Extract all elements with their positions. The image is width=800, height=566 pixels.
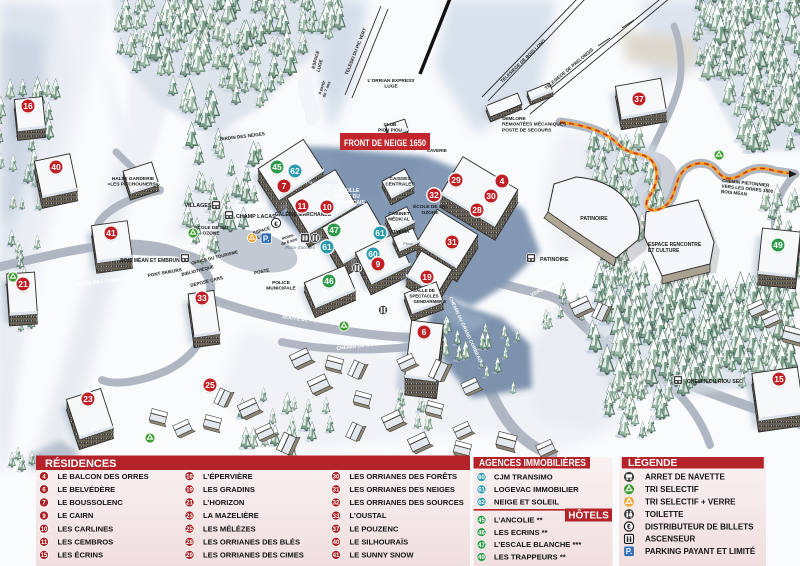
svg-text:Place: Place bbox=[403, 242, 413, 246]
svg-text:MUNICIPALE: MUNICIPALE bbox=[266, 286, 296, 292]
svg-text:L’HORIZON: L’HORIZON bbox=[203, 498, 244, 507]
svg-text:61: 61 bbox=[322, 242, 332, 252]
svg-text:L’ANCOLIE **: L’ANCOLIE ** bbox=[494, 515, 543, 524]
svg-text:L'ORRIAN EXPRESS: L'ORRIAN EXPRESS bbox=[368, 78, 416, 84]
svg-text:ASCENSEUR: ASCENSEUR bbox=[645, 535, 695, 544]
svg-text:NEIGE ET SOLEIL: NEIGE ET SOLEIL bbox=[494, 497, 559, 506]
svg-text:TRI SELECTIF + VERRE: TRI SELECTIF + VERRE bbox=[645, 498, 736, 507]
svg-text:CHAMP LACAS: CHAMP LACAS bbox=[236, 214, 276, 220]
svg-text:CABINET: CABINET bbox=[388, 211, 409, 217]
svg-text:41: 41 bbox=[333, 553, 340, 559]
svg-text:LOGEVAC IMMOBILIER: LOGEVAC IMMOBILIER bbox=[494, 485, 579, 494]
svg-text:23: 23 bbox=[186, 514, 193, 520]
svg-text:€: € bbox=[274, 221, 278, 228]
svg-text:PATINOIRE: PATINOIRE bbox=[540, 257, 569, 263]
svg-text:L’ESCALE BLANCHE ***: L’ESCALE BLANCHE *** bbox=[494, 540, 581, 549]
svg-text:LES CARLINES: LES CARLINES bbox=[58, 524, 114, 533]
svg-text:HÔTELS: HÔTELS bbox=[568, 509, 609, 522]
svg-text:31: 31 bbox=[333, 488, 340, 494]
svg-text:LUGE: LUGE bbox=[384, 84, 398, 90]
svg-text:33: 33 bbox=[333, 514, 340, 520]
svg-text:37: 37 bbox=[333, 527, 340, 533]
svg-text:ARRET DE NAVETTE: ARRET DE NAVETTE bbox=[645, 473, 726, 482]
svg-text:61: 61 bbox=[375, 228, 385, 238]
svg-text:47: 47 bbox=[478, 543, 485, 549]
svg-text:60: 60 bbox=[478, 475, 485, 481]
svg-text:45: 45 bbox=[272, 162, 282, 172]
svg-text:CENTRALES: CENTRALES bbox=[385, 182, 415, 188]
svg-text:PARKING PAYANT ET LIMITÉ: PARKING PAYANT ET LIMITÉ bbox=[645, 547, 756, 556]
svg-text:FRONT DE NEIGE 1650: FRONT DE NEIGE 1650 bbox=[344, 138, 426, 149]
svg-text:11: 11 bbox=[41, 540, 48, 546]
svg-text:LE CAIRN: LE CAIRN bbox=[58, 511, 94, 520]
svg-text:LES ORRIANES DES BLÉS: LES ORRIANES DES BLÉS bbox=[203, 537, 300, 546]
svg-text:49: 49 bbox=[773, 240, 783, 250]
svg-text:CAISSES: CAISSES bbox=[389, 176, 411, 182]
svg-text:LE BOUSSOLENC: LE BOUSSOLENC bbox=[58, 498, 124, 507]
svg-text:25: 25 bbox=[205, 380, 215, 390]
svg-text:19: 19 bbox=[422, 272, 432, 282]
svg-text:POLICE: POLICE bbox=[272, 280, 291, 286]
svg-text:41: 41 bbox=[106, 228, 116, 238]
svg-text:16: 16 bbox=[186, 474, 193, 480]
svg-text:SALLE DE: SALLE DE bbox=[413, 288, 435, 293]
svg-text:SKI FRANÇAIS: SKI FRANÇAIS bbox=[329, 200, 365, 206]
svg-text:ÉCOLE DU: ÉCOLE DU bbox=[334, 192, 360, 200]
svg-text:33: 33 bbox=[197, 293, 207, 303]
svg-text:16: 16 bbox=[23, 101, 33, 111]
svg-text:10: 10 bbox=[41, 527, 48, 533]
svg-text:15: 15 bbox=[774, 374, 784, 384]
svg-text:46: 46 bbox=[478, 530, 485, 536]
svg-text:61: 61 bbox=[478, 488, 485, 494]
svg-text:OZONE: OZONE bbox=[202, 231, 220, 237]
svg-text:21: 21 bbox=[18, 279, 28, 289]
svg-text:LES ORRIANES DES SOURCES: LES ORRIANES DES SOURCES bbox=[350, 498, 464, 507]
svg-text:21: 21 bbox=[186, 501, 193, 507]
svg-text:TOILETTE: TOILETTE bbox=[645, 510, 684, 519]
svg-text:29: 29 bbox=[451, 175, 461, 185]
svg-text:LAVERIE: LAVERIE bbox=[427, 148, 447, 153]
svg-text:LES ORRIANES DES CIMES: LES ORRIANES DES CIMES bbox=[203, 551, 304, 560]
svg-text:LÉGENDE: LÉGENDE bbox=[628, 456, 677, 469]
svg-text:RÉSIDENCES: RÉSIDENCES bbox=[45, 457, 117, 470]
svg-text:9: 9 bbox=[376, 259, 381, 269]
svg-text:BOIS MÉAN ET EMBRUN: BOIS MÉAN ET EMBRUN bbox=[120, 256, 180, 264]
svg-text:15: 15 bbox=[41, 553, 48, 559]
svg-text:LE POUZENC: LE POUZENC bbox=[350, 524, 399, 533]
svg-text:P.: P. bbox=[626, 547, 633, 556]
svg-text:37: 37 bbox=[634, 94, 644, 104]
svg-text:40: 40 bbox=[333, 540, 340, 546]
svg-text:LA MAZELIÈRE: LA MAZELIÈRE bbox=[203, 511, 259, 520]
svg-text:LES TRAPPEURS **: LES TRAPPEURS ** bbox=[494, 553, 566, 562]
svg-text:49: 49 bbox=[478, 555, 485, 561]
svg-text:L’OUSTAL: L’OUSTAL bbox=[350, 511, 387, 520]
svg-text:Place d'accueil: Place d'accueil bbox=[285, 245, 314, 250]
svg-text:11: 11 bbox=[298, 201, 307, 211]
svg-text:10: 10 bbox=[322, 202, 332, 212]
svg-text:46: 46 bbox=[324, 276, 334, 286]
svg-text:POSTE DE SECOURS: POSTE DE SECOURS bbox=[502, 127, 552, 133]
svg-text:28: 28 bbox=[472, 205, 482, 215]
svg-text:VILLAGES: VILLAGES bbox=[185, 203, 212, 209]
svg-text:L’ÉPERVIÈRE: L’ÉPERVIÈRE bbox=[203, 472, 253, 481]
svg-text:6: 6 bbox=[422, 327, 427, 337]
svg-text:HALTE GARDERIE: HALTE GARDERIE bbox=[112, 176, 155, 182]
svg-text:40: 40 bbox=[51, 162, 61, 172]
svg-text:LES ÉCRINS: LES ÉCRINS bbox=[58, 551, 104, 560]
svg-text:LES ORRIANES DES FORÊTS: LES ORRIANES DES FORÊTS bbox=[350, 472, 458, 481]
svg-text:30: 30 bbox=[333, 474, 340, 480]
svg-text:LES GRADINS: LES GRADINS bbox=[203, 485, 255, 494]
svg-text:31: 31 bbox=[447, 237, 457, 247]
svg-text:LES ECRINS **: LES ECRINS ** bbox=[494, 528, 548, 537]
svg-text:29: 29 bbox=[186, 553, 193, 559]
svg-text:4: 4 bbox=[500, 176, 505, 186]
svg-text:LE BELVÉDÈRE: LE BELVÉDÈRE bbox=[58, 485, 116, 494]
svg-text:SEMLORE: SEMLORE bbox=[502, 116, 527, 122]
svg-text:TRI SELECTIF: TRI SELECTIF bbox=[645, 485, 699, 494]
svg-text:19: 19 bbox=[186, 488, 193, 494]
svg-text:32: 32 bbox=[333, 501, 340, 507]
svg-text:LE BALCON DES ORRES: LE BALCON DES ORRES bbox=[58, 472, 149, 481]
svg-text:47: 47 bbox=[329, 225, 339, 235]
svg-text:CHEMIN DU RIOU SEC: CHEMIN DU RIOU SEC bbox=[687, 379, 743, 385]
svg-text:32: 32 bbox=[429, 190, 439, 200]
svg-text:LE SUNNY SNOW: LE SUNNY SNOW bbox=[350, 551, 415, 560]
svg-text:45: 45 bbox=[478, 518, 485, 524]
svg-text:CLUB: CLUB bbox=[384, 122, 397, 127]
svg-text:OZONE: OZONE bbox=[421, 210, 439, 216]
svg-text:GENDARMERIE: GENDARMERIE bbox=[414, 299, 447, 304]
svg-text:LES ORRIANES DES NEIGES: LES ORRIANES DES NEIGES bbox=[350, 485, 456, 494]
svg-text:LES CEMBROS: LES CEMBROS bbox=[58, 537, 114, 546]
svg-text:P.: P. bbox=[263, 235, 270, 244]
svg-text:30: 30 bbox=[486, 191, 496, 201]
svg-text:LE SILHOURAÏS: LE SILHOURAÏS bbox=[350, 537, 409, 546]
svg-text:62: 62 bbox=[290, 166, 300, 176]
svg-text:28: 28 bbox=[186, 540, 193, 546]
svg-text:ET CULTURE: ET CULTURE bbox=[648, 248, 680, 254]
svg-text:DISTRIBUTEUR DE BILLETS: DISTRIBUTEUR DE BILLETS bbox=[645, 522, 754, 531]
svg-text:7: 7 bbox=[282, 181, 287, 191]
svg-text:AGENCES IMMOBILIÈRES: AGENCES IMMOBILIÈRES bbox=[479, 456, 586, 469]
svg-text:€: € bbox=[627, 524, 631, 531]
svg-text:Place du festival: Place du festival bbox=[306, 180, 338, 185]
svg-text:PIOU PIOU: PIOU PIOU bbox=[378, 128, 402, 133]
svg-text:SPECTACLES: SPECTACLES bbox=[409, 293, 438, 298]
svg-text:LES MÉLÈZES: LES MÉLÈZES bbox=[203, 524, 256, 533]
svg-text:PATINOIRE: PATINOIRE bbox=[580, 216, 608, 222]
svg-text:«LES PITCHOUNERS»: «LES PITCHOUNERS» bbox=[108, 182, 159, 188]
svg-text:25: 25 bbox=[186, 527, 193, 533]
svg-text:23: 23 bbox=[83, 394, 93, 404]
svg-text:62: 62 bbox=[478, 500, 485, 506]
svg-text:CJM TRANSIMO: CJM TRANSIMO bbox=[494, 473, 553, 482]
